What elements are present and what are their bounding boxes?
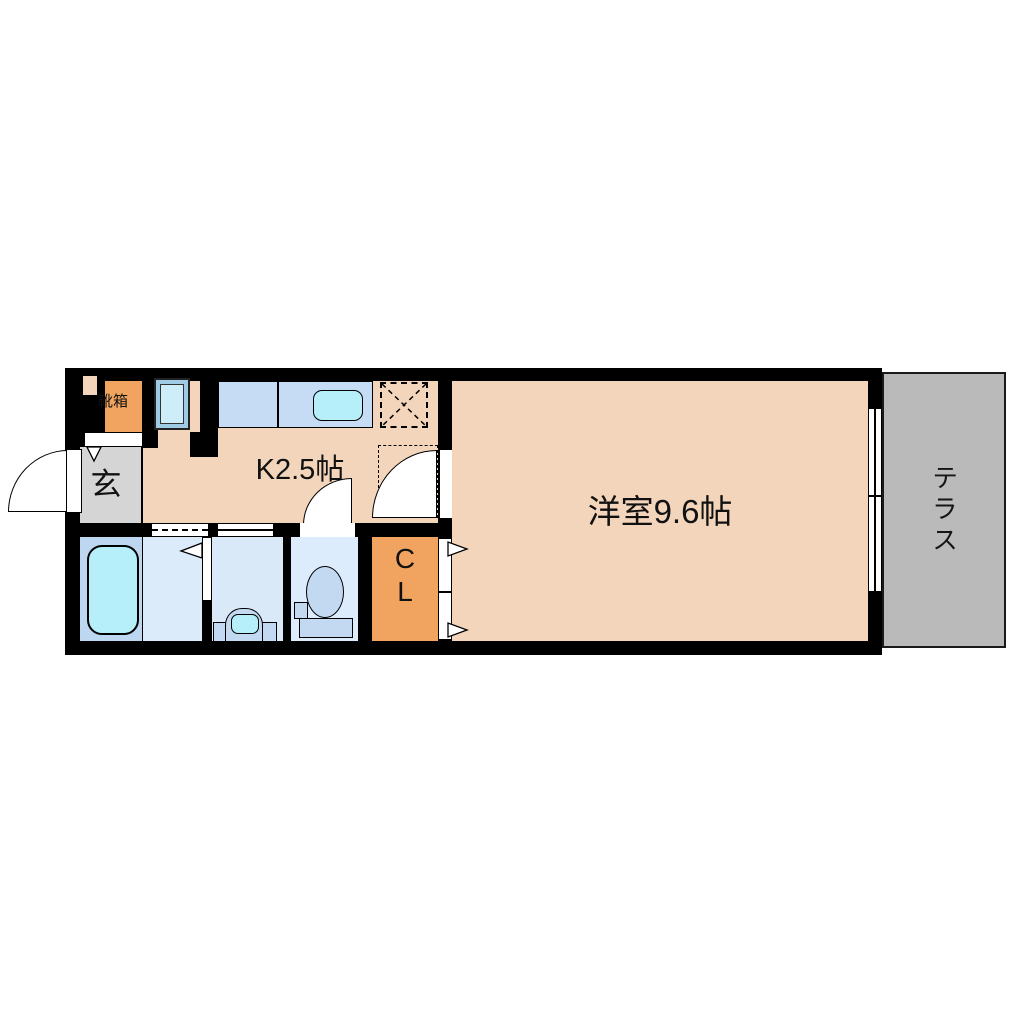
door-direction-markers [0, 0, 1020, 1020]
floor-plan: テラス 靴箱 玄 K2.5帖 [0, 0, 1020, 1020]
bathroom-door-arrow [181, 543, 202, 558]
closet-door-arrow-bottom [448, 623, 467, 637]
shoe-cabinet-arrow [87, 447, 101, 461]
closet-door-arrow-top [448, 542, 467, 556]
